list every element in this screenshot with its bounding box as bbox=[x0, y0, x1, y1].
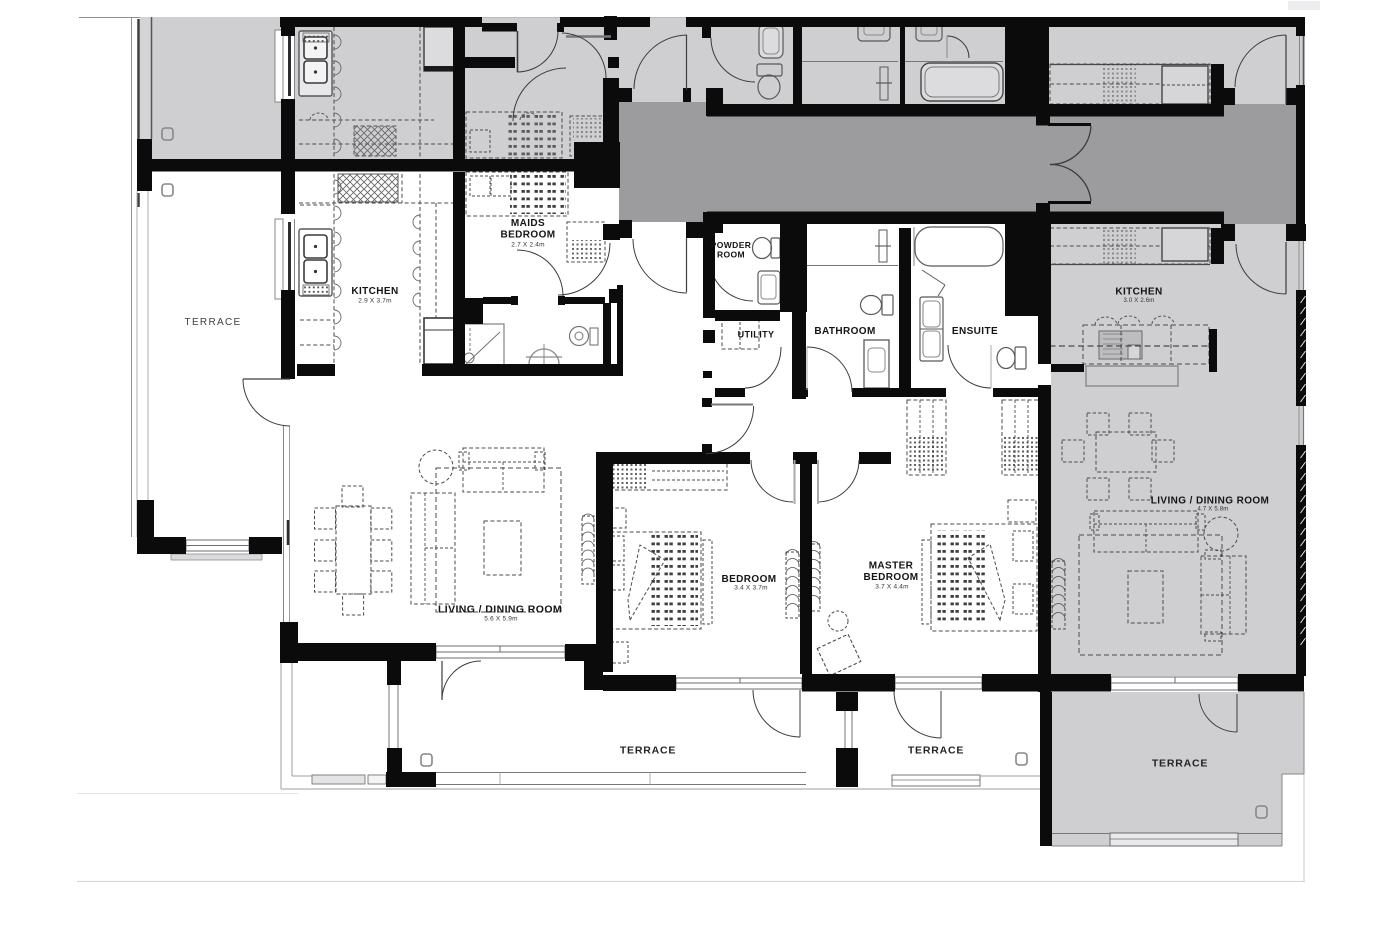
svg-text:ENSUITE: ENSUITE bbox=[952, 326, 998, 337]
svg-text:TERRACE: TERRACE bbox=[620, 745, 676, 757]
svg-text:3.4 X 3.7m: 3.4 X 3.7m bbox=[734, 585, 767, 592]
svg-text:MAIDS: MAIDS bbox=[511, 218, 545, 229]
svg-text:LIVING / DINING ROOM: LIVING / DINING ROOM bbox=[1151, 496, 1270, 507]
svg-text:TERRACE: TERRACE bbox=[908, 745, 964, 757]
svg-text:BEDROOM: BEDROOM bbox=[500, 230, 555, 241]
svg-text:ROOM: ROOM bbox=[717, 250, 745, 260]
svg-text:3.7 X 4.4m: 3.7 X 4.4m bbox=[875, 584, 908, 591]
svg-text:UTILITY: UTILITY bbox=[738, 330, 775, 340]
svg-text:BATHROOM: BATHROOM bbox=[814, 326, 875, 337]
svg-text:2.7 X 2.4m: 2.7 X 2.4m bbox=[511, 242, 544, 249]
svg-text:KITCHEN: KITCHEN bbox=[1115, 287, 1162, 298]
svg-text:5.6 X 5.9m: 5.6 X 5.9m bbox=[484, 616, 517, 623]
svg-text:2.9 X 3.7m: 2.9 X 3.7m bbox=[358, 298, 391, 305]
svg-text:3.0 X 2.6m: 3.0 X 2.6m bbox=[1123, 298, 1154, 304]
svg-text:TERRACE: TERRACE bbox=[1152, 758, 1208, 770]
svg-text:4.7 X 5.8m: 4.7 X 5.8m bbox=[1197, 507, 1228, 513]
svg-text:MASTER: MASTER bbox=[869, 561, 914, 572]
svg-text:BEDROOM: BEDROOM bbox=[863, 572, 918, 583]
svg-text:LIVING / DINING ROOM: LIVING / DINING ROOM bbox=[438, 604, 562, 616]
svg-text:POWDER: POWDER bbox=[711, 240, 752, 250]
svg-text:TERRACE: TERRACE bbox=[185, 317, 242, 328]
svg-text:KITCHEN: KITCHEN bbox=[351, 286, 398, 297]
svg-text:BEDROOM: BEDROOM bbox=[721, 574, 776, 585]
